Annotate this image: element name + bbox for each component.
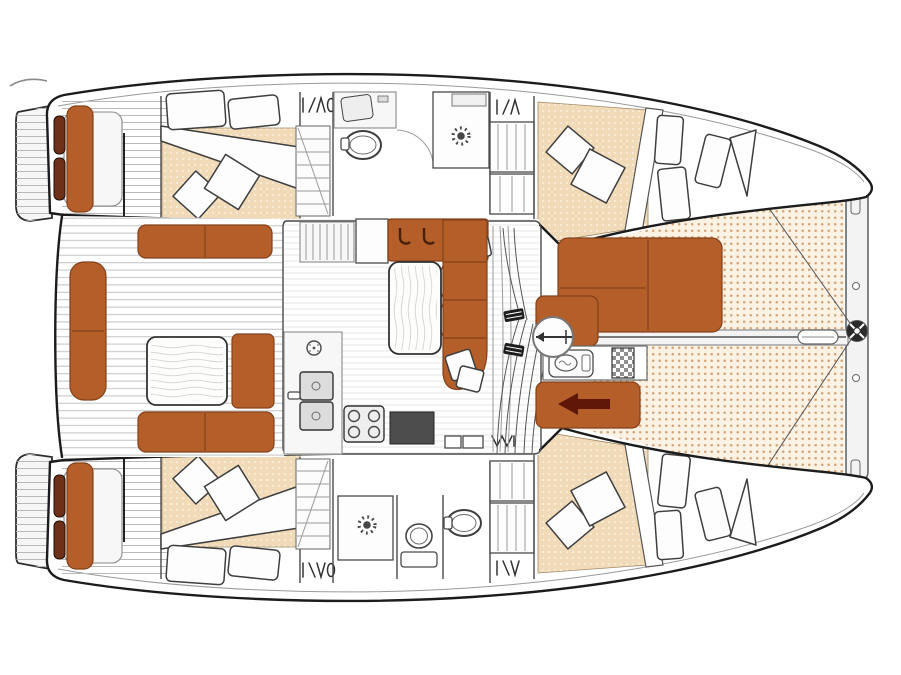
nav-seat [300,222,354,262]
floor-plan-page [0,0,901,675]
galley-stove [344,406,384,442]
salon-table [389,262,441,354]
galley-oven [390,412,434,444]
tap-icon [341,138,349,150]
cockpit-table [147,337,227,405]
salon [283,219,547,455]
deck-hatch-icon [612,348,634,378]
faucet-icon [288,392,300,399]
aft-cockpit [55,216,284,457]
cockpit-bench-starboard [138,412,274,452]
chart-table [356,219,388,263]
salon-sofa [439,220,487,393]
cockpit-side-seat [232,334,274,408]
shower-bench [452,94,486,106]
faucet-icon [378,96,388,102]
tap-icon [444,517,452,529]
mooring-cleat-line [10,79,47,86]
beam-bolt [853,375,860,382]
toilet-tank [401,552,437,567]
floor-plan-svg [0,0,901,675]
mast-base [533,317,573,357]
beam-bolt [853,283,860,290]
vanity-basin [340,94,373,122]
pillow [456,365,485,392]
